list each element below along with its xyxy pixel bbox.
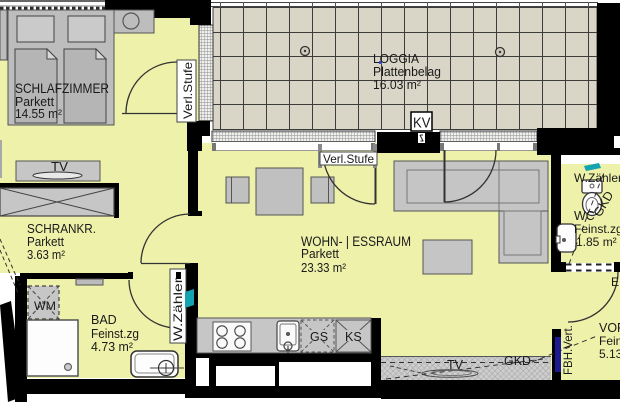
svg-text:Feinst.zg: Feinst.zg: [91, 327, 139, 341]
svg-text:14.55 m²: 14.55 m²: [15, 107, 62, 121]
svg-text:FBH.Vert.: FBH.Vert.: [563, 325, 575, 375]
svg-text:16.03 m²: 16.03 m²: [373, 78, 421, 92]
svg-text:GKD: GKD: [504, 353, 531, 368]
svg-text:4.73 m²: 4.73 m²: [91, 340, 133, 354]
svg-text:GS: GS: [310, 330, 328, 344]
svg-text:W.Zähler: W.Zähler: [171, 278, 185, 341]
svg-text:Feinst.zg: Feinst.zg: [599, 334, 620, 348]
svg-text:Feinst.zg: Feinst.zg: [574, 222, 620, 236]
svg-text:SCHRANKR.: SCHRANKR.: [27, 222, 96, 236]
svg-text:BAD: BAD: [91, 313, 117, 327]
svg-text:KS: KS: [345, 330, 362, 344]
svg-text:Plattenbelag: Plattenbelag: [373, 65, 441, 79]
svg-text:SCHLAFZIMMER: SCHLAFZIMMER: [15, 80, 109, 96]
svg-text:VORRAUM: VORRAUM: [599, 321, 620, 335]
svg-text:W.Zähler: W.Zähler: [574, 171, 620, 185]
svg-text:23.33 m²: 23.33 m²: [301, 261, 346, 275]
svg-text:TV: TV: [447, 357, 463, 372]
svg-text:E.: E.: [611, 275, 620, 289]
svg-text:KV: KV: [413, 116, 431, 132]
svg-text:Verl.Stufe: Verl.Stufe: [323, 152, 374, 166]
svg-text:WM: WM: [34, 299, 56, 313]
svg-text:Parkett: Parkett: [27, 235, 64, 249]
svg-text:LOGGIA: LOGGIA: [373, 52, 420, 66]
svg-text:Verl.Stufe: Verl.Stufe: [181, 62, 195, 119]
svg-text:Parkett: Parkett: [301, 247, 339, 261]
svg-text:1.85 m²: 1.85 m²: [576, 235, 617, 249]
svg-text:5.13 m²: 5.13 m²: [599, 347, 620, 361]
svg-text:TV: TV: [51, 160, 69, 174]
svg-text:3.63 m²: 3.63 m²: [27, 248, 65, 262]
